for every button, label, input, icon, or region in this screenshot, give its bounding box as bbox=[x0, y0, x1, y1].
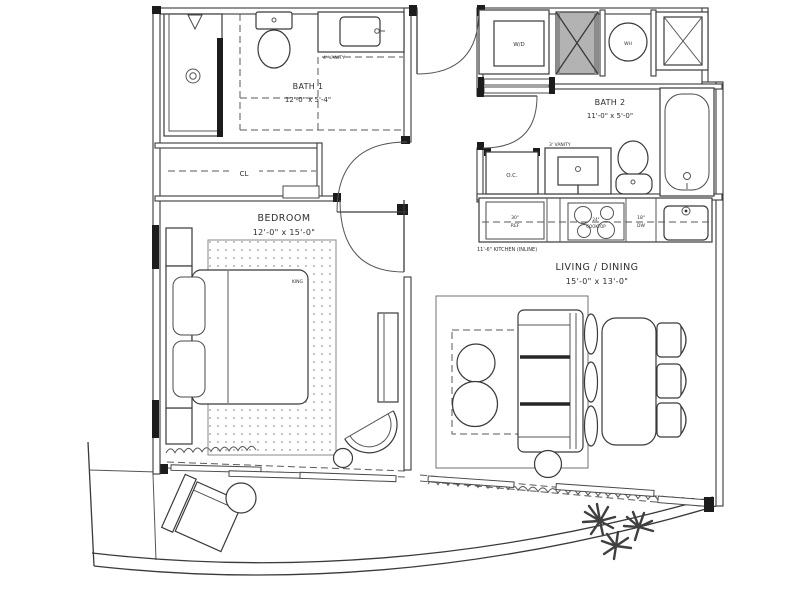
dining-chair bbox=[657, 403, 686, 437]
door-jamb bbox=[704, 497, 714, 512]
owners-closet-label: O.C. bbox=[506, 173, 518, 179]
bath1-dims-label: 12'-0" x 5'-4" bbox=[285, 96, 331, 104]
utility-shaft bbox=[556, 12, 598, 74]
ottoman bbox=[457, 344, 495, 382]
water-heater-label: WH bbox=[624, 41, 632, 47]
ottoman bbox=[453, 382, 498, 427]
utility-row: W/D WH bbox=[478, 10, 708, 94]
pillow bbox=[173, 341, 205, 397]
dining-chair bbox=[657, 323, 686, 357]
sliding-door-panel bbox=[300, 472, 396, 481]
closet-step bbox=[283, 186, 319, 198]
wall-right bbox=[716, 82, 723, 506]
door-jamb bbox=[160, 464, 168, 474]
bedroom-armchair bbox=[345, 411, 407, 463]
door-jamb bbox=[409, 5, 417, 16]
dining-table bbox=[602, 318, 656, 445]
pillow bbox=[173, 277, 205, 335]
media-console bbox=[378, 313, 398, 402]
sliding-door-panel bbox=[428, 476, 514, 487]
door-jamb bbox=[549, 77, 555, 94]
living-name-label: LIVING / DINING bbox=[555, 262, 638, 273]
wall-bedroom-right bbox=[404, 277, 411, 470]
bath2: O.C. 3' VANITY BATH 2 11'-0" x 5'-0" bbox=[486, 88, 714, 196]
mattress bbox=[192, 270, 308, 404]
bedroom-name-label: BEDROOM bbox=[257, 213, 310, 224]
dining-chair bbox=[657, 364, 686, 398]
bath1: BATH 1 12'-0" x 5'-4" 4' VANITY bbox=[164, 12, 404, 137]
cooktop-size-label: 24" bbox=[593, 217, 600, 222]
door-jamb bbox=[397, 204, 408, 215]
fridge-size-label: 30" bbox=[511, 215, 519, 221]
dishwasher-label: DW bbox=[637, 223, 645, 229]
wall-utility-right bbox=[651, 10, 656, 76]
owners-closet: O.C. bbox=[486, 152, 538, 194]
bath1-door bbox=[337, 142, 407, 212]
washer-dryer: W/D bbox=[479, 10, 549, 74]
kitchen: 30" REF 24" COOKTOP 18" DW 11'-6" KITCHE… bbox=[477, 198, 712, 253]
entry-door bbox=[417, 10, 479, 74]
bath2-name-label: BATH 2 bbox=[595, 98, 626, 107]
wall-closet-top bbox=[155, 143, 322, 148]
bedroom-door bbox=[340, 200, 404, 272]
footstool bbox=[334, 449, 353, 468]
sofa bbox=[518, 310, 583, 452]
closet-label: CL bbox=[240, 170, 249, 178]
balcony-left-wall bbox=[88, 442, 94, 566]
bath1-toilet bbox=[256, 12, 292, 68]
bath2-vanity bbox=[545, 148, 611, 194]
bath2-toilet bbox=[616, 141, 652, 194]
nightstand bbox=[166, 408, 192, 444]
wall-utility-left bbox=[600, 10, 605, 76]
wall-bath1-hall bbox=[404, 8, 411, 142]
shaft-2 bbox=[656, 12, 708, 70]
palm-plant bbox=[583, 504, 653, 559]
living-dims-label: 15'-0" x 13'-0" bbox=[566, 277, 628, 286]
bath1-name-label: BATH 1 bbox=[293, 82, 324, 91]
fridge: 30" REF bbox=[486, 202, 544, 239]
door-jamb bbox=[478, 77, 484, 94]
kitchen-note-label: 11'-6" KITCHEN (INLINE) bbox=[477, 247, 537, 253]
shower bbox=[164, 14, 222, 136]
bath1-vanity-label: 4' VANITY bbox=[323, 55, 345, 61]
laundry-door bbox=[484, 87, 550, 93]
dishwasher-size-label: 18" bbox=[637, 215, 645, 221]
bath2-door bbox=[483, 96, 537, 148]
bedroom-dims-label: 12'-0" x 15'-0" bbox=[253, 228, 315, 237]
balcony-round-table bbox=[226, 483, 256, 513]
bed-size-label: KING bbox=[292, 279, 304, 285]
cooktop-label: COOKTOP bbox=[586, 224, 606, 229]
balcony-top-edge bbox=[89, 470, 157, 472]
balcony-inner-edge bbox=[153, 474, 156, 560]
bath2-dims-label: 11'-0" x 5'-0" bbox=[587, 112, 633, 120]
corner-jamb bbox=[152, 6, 161, 14]
washer-dryer-label: W/D bbox=[513, 42, 525, 48]
window-frame bbox=[152, 225, 159, 269]
sliding-door-panel bbox=[658, 496, 708, 506]
shower-wall-band bbox=[217, 38, 223, 137]
bathtub bbox=[660, 88, 714, 196]
king-bed: KING bbox=[166, 266, 308, 408]
sliding-door-panel bbox=[556, 484, 654, 497]
bath1-vanity bbox=[318, 12, 404, 52]
floor-plan: BATH 1 12'-0" x 5'-4" 4' VANITY CL KING bbox=[0, 0, 800, 600]
living-dining: LIVING / DINING 15'-0" x 13'-0" bbox=[436, 262, 686, 478]
side-table bbox=[535, 451, 562, 478]
window-frame bbox=[152, 400, 159, 438]
laundry-door bbox=[484, 79, 550, 85]
bedroom: KING BEDROOM 12'-0" x 15'-0" bbox=[166, 213, 407, 468]
bench-cushion bbox=[585, 406, 598, 446]
fridge-label: REF bbox=[511, 223, 520, 229]
bath2-vanity-label: 3' VANITY bbox=[549, 142, 571, 148]
nightstand bbox=[166, 228, 192, 266]
kitchen-sink bbox=[664, 206, 708, 240]
balcony bbox=[88, 442, 716, 575]
bench-cushion bbox=[585, 362, 598, 402]
water-heater: WH bbox=[609, 23, 647, 61]
door-jamb bbox=[477, 142, 484, 150]
bench-cushion bbox=[585, 314, 598, 354]
door-jamb bbox=[401, 136, 410, 144]
closet: CL bbox=[168, 164, 319, 198]
